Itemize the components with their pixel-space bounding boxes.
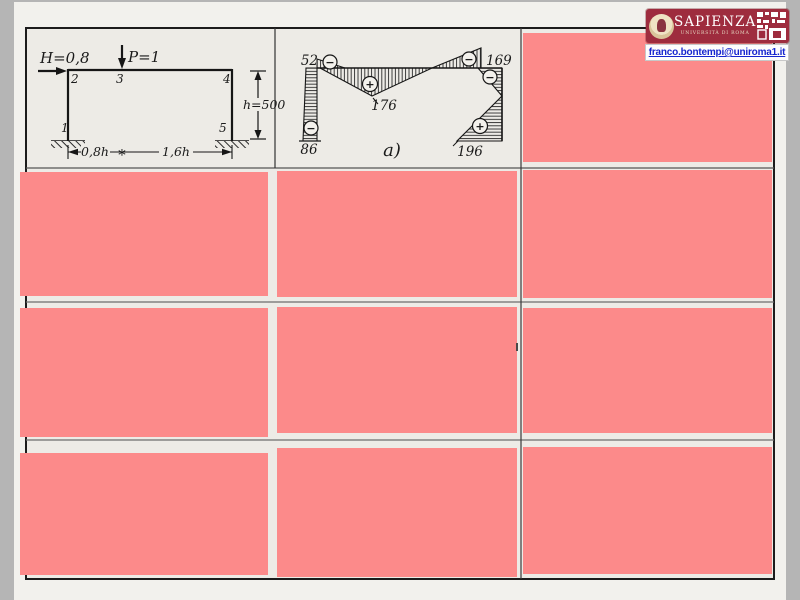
span-separator-mark: ∗ xyxy=(117,143,127,161)
node-label-4: 4 xyxy=(222,72,231,86)
masked-panel-r3c2 xyxy=(277,307,517,433)
masked-panel-r3c3 xyxy=(523,308,772,433)
vertical-load-label: P=1 xyxy=(127,48,160,66)
moment-value-196: 196 xyxy=(457,144,483,160)
right-span-label: 1,6h xyxy=(162,144,190,159)
node-label-5: 5 xyxy=(219,121,227,135)
moment-caption: a) xyxy=(383,140,401,161)
masked-panel-r2c3 xyxy=(523,170,772,298)
sign-minus-column-right: − xyxy=(485,71,494,84)
moment-value-52: 52 xyxy=(301,53,318,69)
email-link[interactable]: franco.bontempi@uniroma1.it xyxy=(649,47,786,58)
sign-plus-beam: + xyxy=(365,78,374,91)
sign-plus-column-right: + xyxy=(475,120,484,133)
university-emblem-icon xyxy=(649,14,674,39)
moment-value-169: 169 xyxy=(486,53,512,69)
masked-panel-r3c1 xyxy=(20,308,268,437)
moment-value-176: 176 xyxy=(371,98,397,114)
moment-value-86: 86 xyxy=(300,142,318,158)
sign-minus-beam-left: − xyxy=(325,56,334,69)
horizontal-load-label: H=0,8 xyxy=(39,49,90,67)
qr-code-icon xyxy=(756,11,787,41)
masked-panel-r4c3 xyxy=(523,447,772,574)
masked-panel-r4c1 xyxy=(20,453,268,575)
left-span-label: 0,8h xyxy=(81,144,109,159)
node-label-2: 2 xyxy=(70,72,79,86)
node-label-3: 3 xyxy=(116,72,124,86)
slide-stage: H=0,8 P=1 2 3 4 1 5 h=500 xyxy=(0,0,800,600)
top-margin-strip xyxy=(0,0,800,2)
masked-panel-r4c2 xyxy=(277,448,517,577)
sign-minus-beam-right: − xyxy=(464,53,473,66)
email-box: franco.bontempi@uniroma1.it xyxy=(645,44,789,61)
stray-mark xyxy=(516,343,518,351)
sapienza-logo: SAPIENZA UNIVERSITÀ DI ROMA xyxy=(646,9,789,43)
sign-minus-column-left: − xyxy=(306,122,315,135)
node-label-1: 1 xyxy=(61,121,69,135)
height-dim-label: h=500 xyxy=(243,97,285,112)
logo-institution-name: SAPIENZA xyxy=(674,16,756,30)
logo-institution-subtitle: UNIVERSITÀ DI ROMA xyxy=(674,32,756,37)
masked-panel-r2c2 xyxy=(277,171,517,297)
masked-panel-r2c1 xyxy=(20,172,268,296)
